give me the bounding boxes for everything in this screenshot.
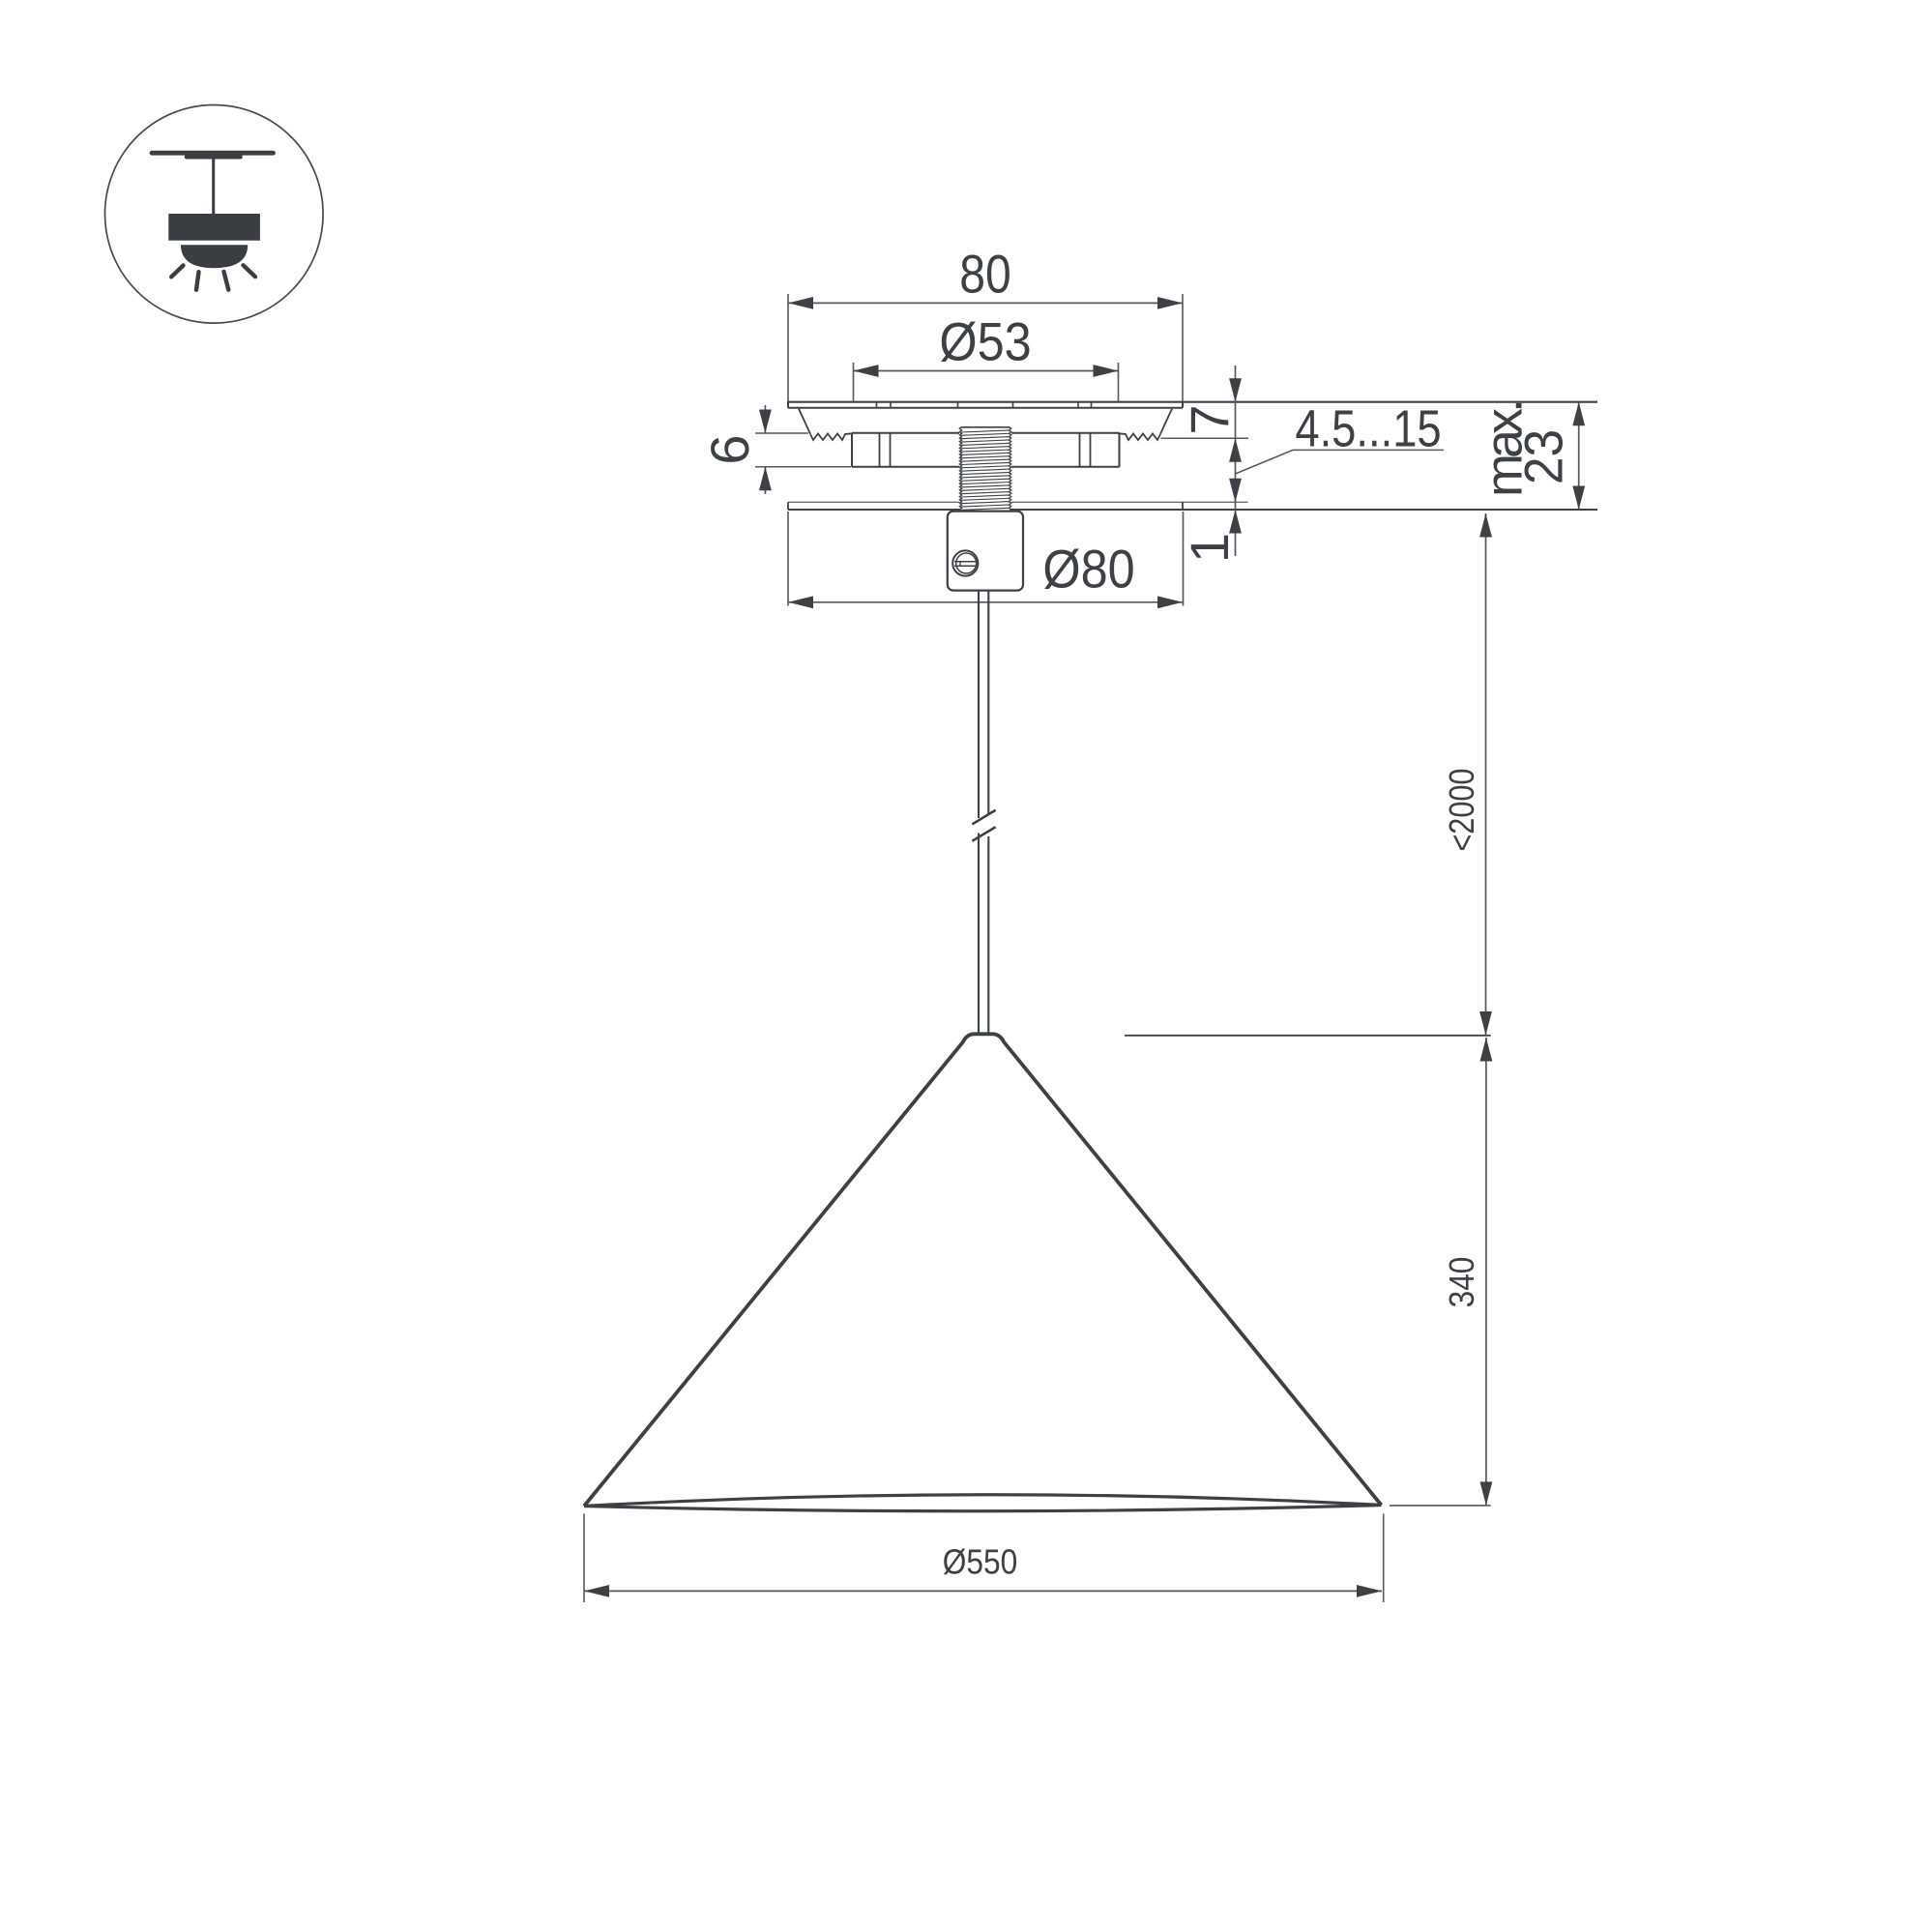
svg-text:<2000: <2000	[1444, 769, 1482, 852]
svg-text:Ø53: Ø53	[939, 312, 1031, 372]
svg-text:4.5...15: 4.5...15	[1295, 399, 1441, 458]
svg-text:340: 340	[1443, 1257, 1481, 1308]
svg-text:80: 80	[959, 245, 1011, 305]
svg-text:Ø550: Ø550	[943, 1543, 1017, 1582]
svg-text:7: 7	[1179, 404, 1240, 434]
svg-text:23: 23	[1514, 429, 1574, 484]
svg-text:6: 6	[699, 434, 760, 464]
svg-text:1: 1	[1179, 533, 1240, 563]
svg-text:Ø80: Ø80	[1042, 540, 1134, 600]
